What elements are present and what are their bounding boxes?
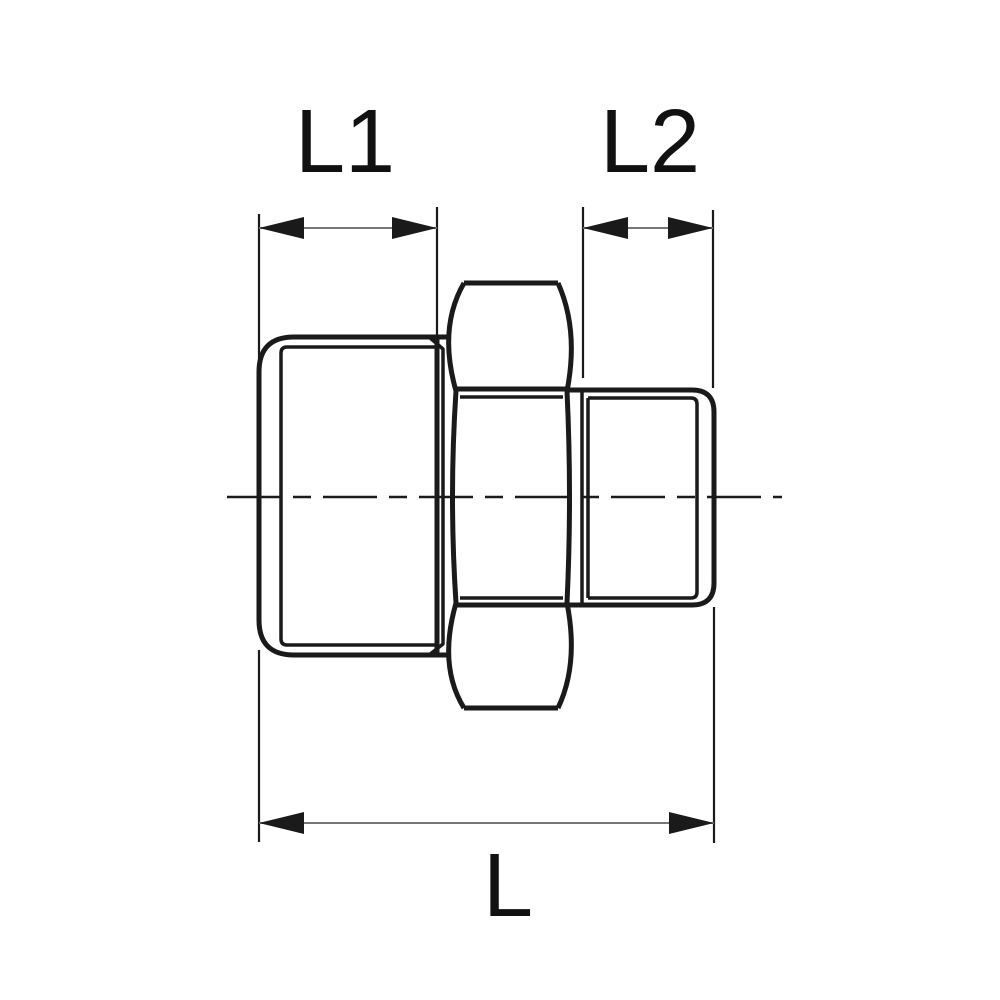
l-arrow-left <box>259 812 304 834</box>
drawing-canvas: L1 L2 L <box>0 0 1000 1000</box>
l2-label: L2 <box>600 92 700 192</box>
l1-label: L1 <box>295 92 395 192</box>
dimension-l1: L1 <box>259 92 437 360</box>
technical-drawing: L1 L2 L <box>0 0 1000 1000</box>
dimension-l2: L2 <box>583 92 713 388</box>
l2-arrow-right <box>668 217 713 239</box>
l-arrow-right <box>669 812 714 834</box>
l2-arrow-left <box>583 217 628 239</box>
l1-arrow-left <box>259 217 304 239</box>
hex-left-profile <box>449 283 464 708</box>
l1-arrow-right <box>392 217 437 239</box>
hex-right-profile <box>558 283 571 708</box>
hex-nut <box>449 283 572 708</box>
l-label: L <box>483 836 533 936</box>
